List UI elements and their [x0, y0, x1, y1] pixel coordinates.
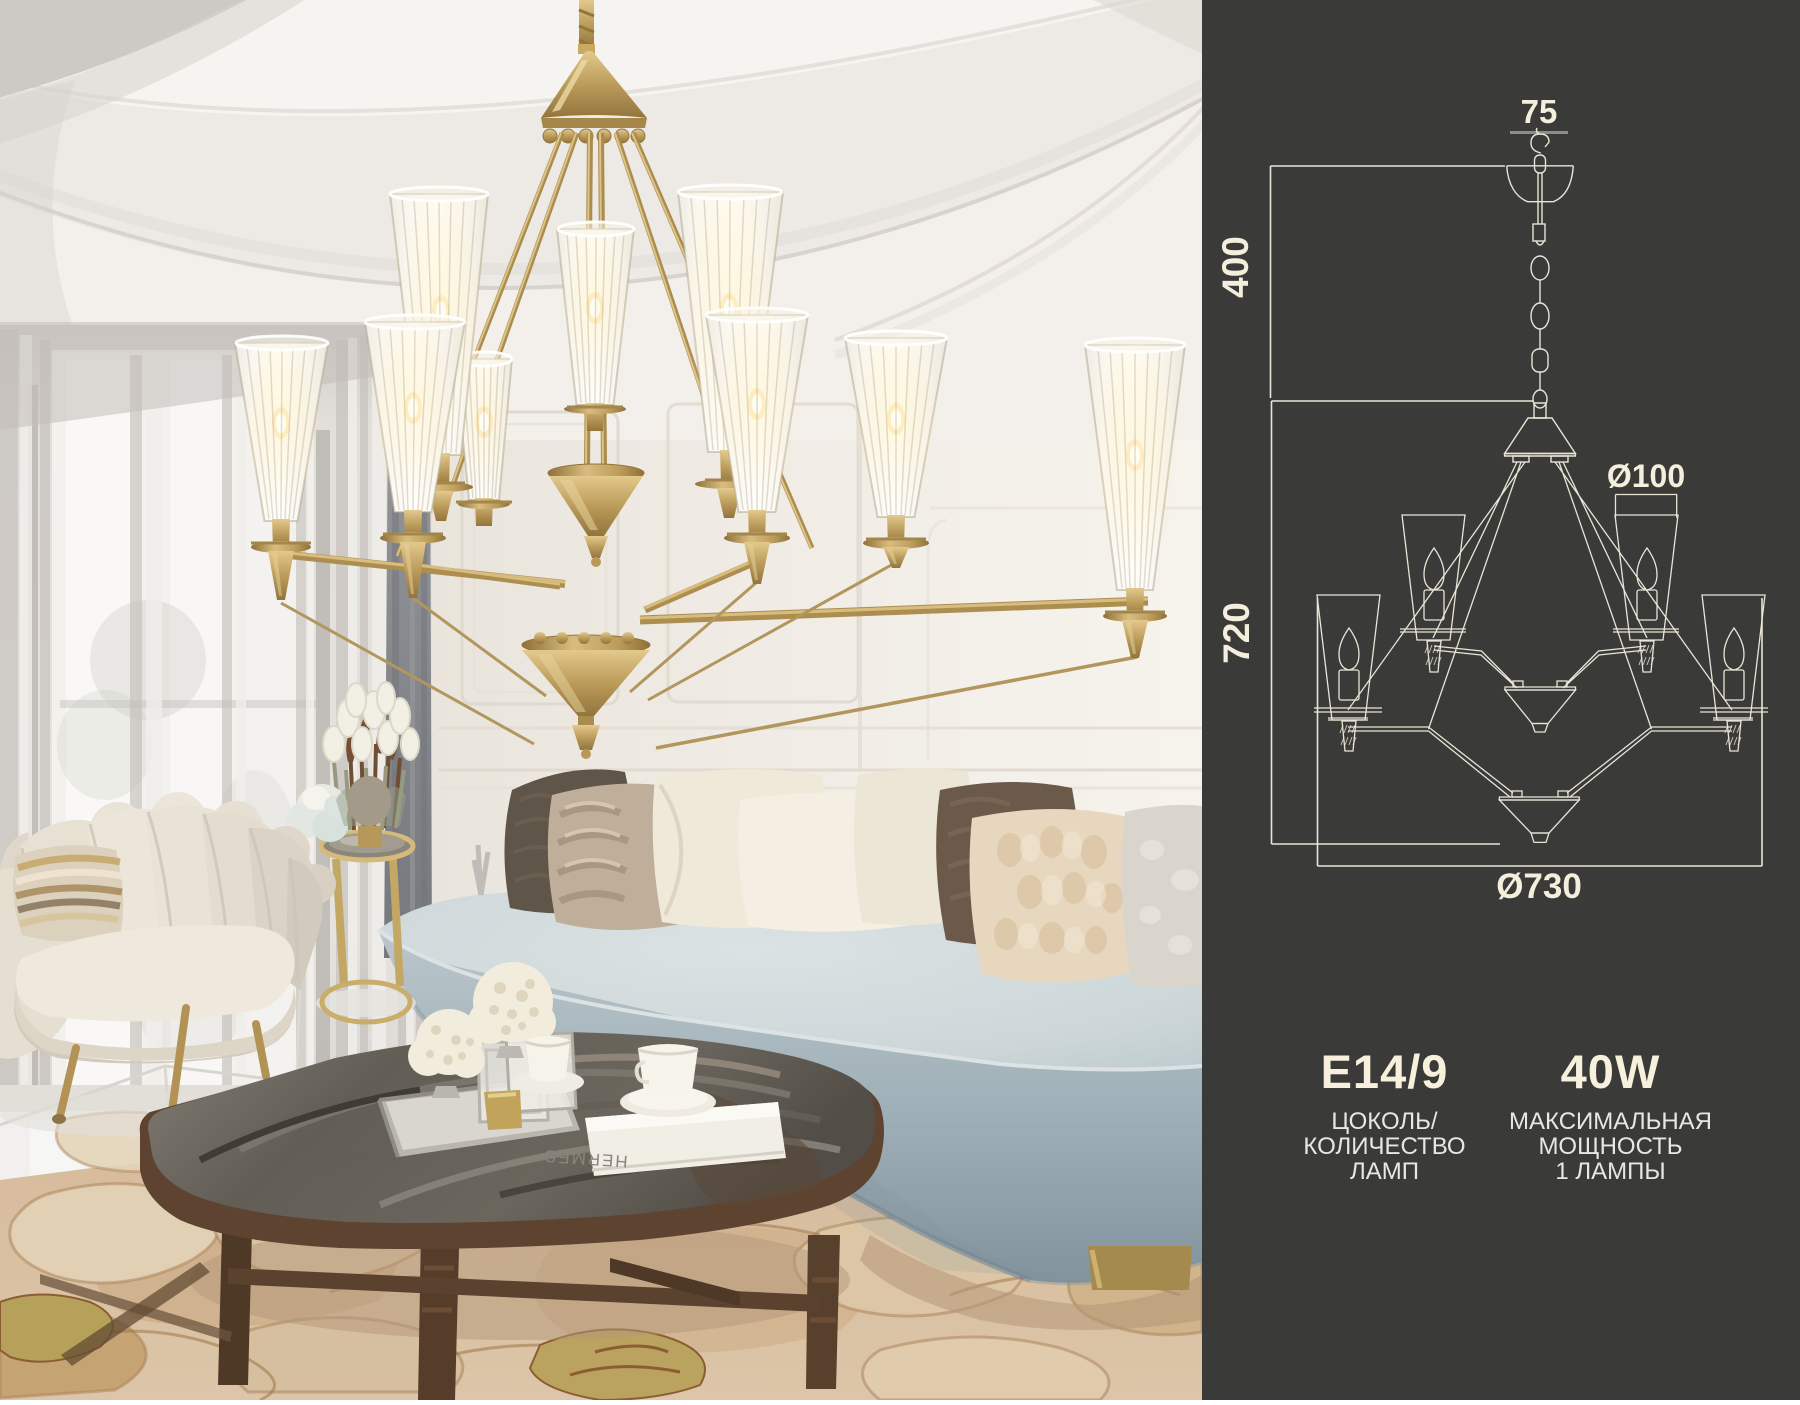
svg-text:Ø100: Ø100 — [1607, 458, 1685, 494]
svg-text:Ø730: Ø730 — [1496, 867, 1582, 906]
svg-text:720: 720 — [1216, 602, 1257, 664]
svg-text:400: 400 — [1215, 236, 1256, 298]
svg-text:75: 75 — [1521, 93, 1558, 130]
